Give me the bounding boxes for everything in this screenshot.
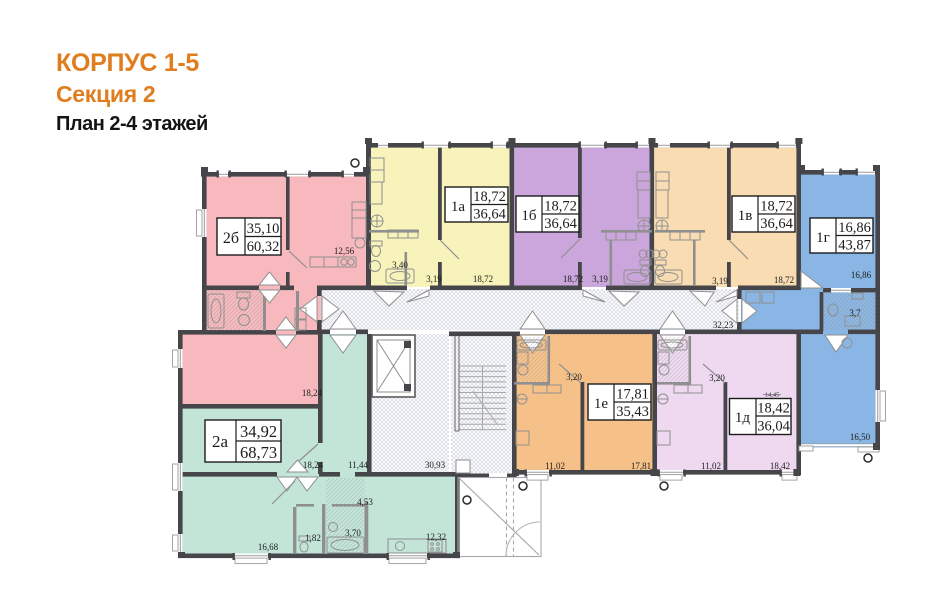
svg-text:35,10: 35,10 — [247, 221, 280, 237]
svg-text:11,44: 11,44 — [348, 460, 368, 470]
svg-text:18,72: 18,72 — [760, 199, 793, 215]
svg-text:11,02: 11,02 — [701, 461, 721, 471]
svg-text:16,68: 16,68 — [258, 542, 279, 552]
svg-text:3,19: 3,19 — [592, 274, 608, 284]
svg-text:68,73: 68,73 — [240, 443, 277, 462]
svg-text:1в: 1в — [738, 208, 753, 224]
svg-text:3,20: 3,20 — [566, 372, 582, 382]
svg-text:43,87: 43,87 — [838, 238, 871, 254]
svg-text:18,72: 18,72 — [563, 274, 583, 284]
svg-text:3,19: 3,19 — [426, 274, 442, 284]
svg-text:18,72: 18,72 — [473, 189, 506, 205]
svg-text:17,81: 17,81 — [631, 461, 651, 471]
svg-text:34,92: 34,92 — [240, 422, 277, 441]
svg-text:Секция 2: Секция 2 — [56, 81, 155, 107]
svg-text:18,42: 18,42 — [757, 401, 790, 417]
svg-text:1е: 1е — [594, 396, 609, 412]
svg-text:3,20: 3,20 — [709, 373, 725, 383]
svg-text:36,64: 36,64 — [760, 216, 793, 232]
svg-text:11,02: 11,02 — [545, 461, 565, 471]
svg-text:3,7: 3,7 — [849, 308, 861, 318]
svg-text:3,70: 3,70 — [345, 528, 361, 538]
svg-text:18,72: 18,72 — [544, 199, 577, 215]
svg-text:14,45: 14,45 — [765, 392, 780, 399]
svg-text:36,64: 36,64 — [544, 216, 577, 232]
svg-text:2б: 2б — [223, 230, 239, 247]
svg-text:18,24: 18,24 — [302, 388, 323, 398]
svg-text:18,72: 18,72 — [774, 275, 794, 285]
svg-text:План 2-4 этажей: План 2-4 этажей — [56, 113, 208, 135]
svg-text:36,64: 36,64 — [473, 207, 506, 223]
svg-text:60,32: 60,32 — [247, 239, 280, 255]
svg-text:12,32: 12,32 — [426, 532, 446, 542]
svg-text:3,19: 3,19 — [712, 276, 728, 286]
svg-text:16,50: 16,50 — [850, 432, 871, 442]
svg-text:12,56: 12,56 — [334, 246, 355, 256]
svg-text:18,24: 18,24 — [303, 460, 324, 470]
svg-text:16,86: 16,86 — [851, 270, 872, 280]
svg-text:1,82: 1,82 — [305, 533, 321, 543]
svg-text:32,23: 32,23 — [713, 320, 734, 330]
svg-text:30,93: 30,93 — [425, 460, 446, 470]
svg-text:1д: 1д — [735, 410, 751, 426]
svg-text:36,04: 36,04 — [757, 419, 790, 435]
svg-text:35,43: 35,43 — [616, 404, 649, 420]
svg-text:3,40: 3,40 — [392, 260, 408, 270]
svg-text:1г: 1г — [816, 230, 830, 246]
svg-text:18,42: 18,42 — [770, 461, 790, 471]
svg-text:17,81: 17,81 — [616, 387, 649, 403]
svg-text:1а: 1а — [451, 199, 466, 215]
svg-text:2а: 2а — [212, 432, 229, 451]
svg-text:4,53: 4,53 — [357, 497, 373, 507]
svg-text:1б: 1б — [521, 208, 537, 224]
svg-text:16,86: 16,86 — [838, 220, 871, 236]
svg-text:18,72: 18,72 — [473, 274, 493, 284]
svg-text:КОРПУС 1-5: КОРПУС 1-5 — [56, 49, 199, 77]
